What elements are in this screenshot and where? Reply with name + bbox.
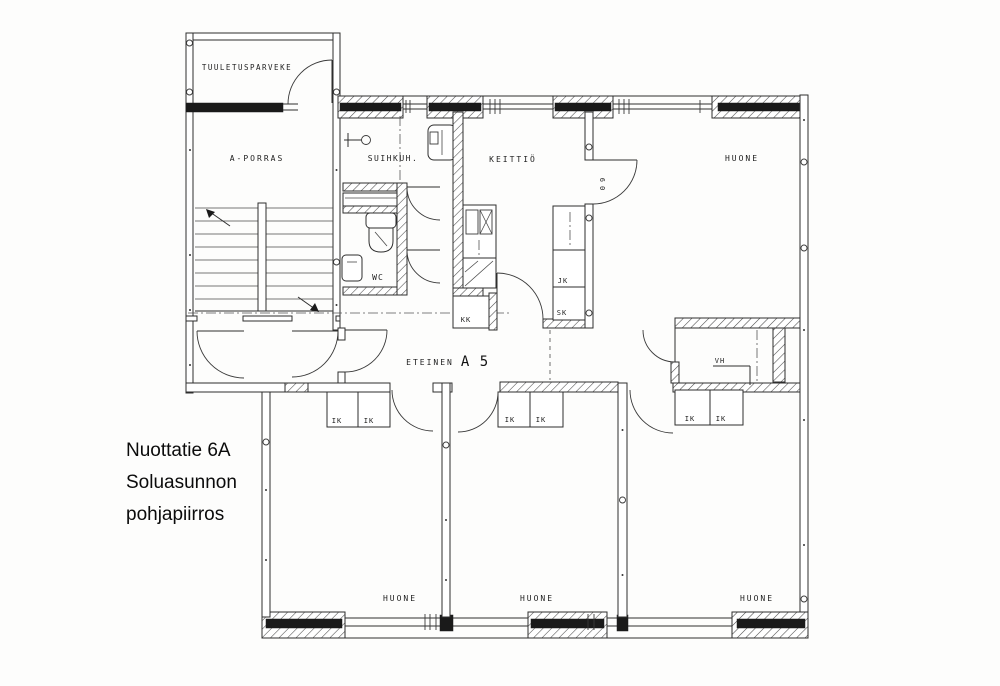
door-width-mark: 60 [598, 178, 606, 194]
wc-handbasin-icon [342, 255, 362, 281]
lower-west-wall [262, 390, 270, 617]
wardrobe-label: IK [364, 417, 374, 425]
hallway-entry-door [345, 330, 387, 372]
landing-door-right [292, 331, 338, 377]
floorplan-drawing: TUULETUSPARVEKE A-PORRAS SUIHKUH. KEITTI… [0, 0, 1000, 686]
west-wall [186, 33, 193, 393]
shower-label: SUIHKUH. [368, 154, 419, 163]
caption-line2: Soluasunnon [126, 472, 237, 493]
room2-label: HUONE [520, 594, 554, 603]
balcony-door [288, 60, 332, 104]
shower-head-icon [344, 133, 371, 147]
room-labels: TUULETUSPARVEKE A-PORRAS SUIHKUH. KEITTI… [202, 63, 774, 603]
east-wall [800, 95, 808, 638]
fridge-cupboard-column [553, 206, 586, 320]
closet-door [643, 328, 675, 362]
kitchenette-nook [453, 293, 497, 330]
stair-handrail [258, 203, 266, 311]
closet-north-wall [675, 318, 800, 328]
room1-label: HUONE [383, 594, 417, 603]
cleaning-cupboard-label: SK [557, 309, 567, 317]
room-top-label: HUONE [725, 154, 759, 163]
room2-door [458, 392, 498, 432]
room3-door [630, 390, 673, 433]
caption-line3: pohjapiirros [126, 504, 224, 525]
kitchenette-label: KK [461, 316, 471, 324]
toilet-icon [366, 213, 396, 252]
closet-label: VH [715, 357, 725, 365]
stairwell-east-wall [333, 33, 340, 330]
wc-vanity [343, 193, 403, 206]
hallway-label: ETEINEN [406, 358, 454, 367]
wet-room-block [342, 116, 456, 295]
staircase-label: A-PORRAS [230, 154, 285, 163]
kitchen-counter-sink [463, 205, 496, 288]
wardrobe-label: IK [536, 416, 546, 424]
washbasin-icon [428, 125, 456, 160]
exterior-walls [186, 33, 808, 638]
balcony-top-wall [186, 33, 338, 40]
kitchen-label: KEITTIÖ [489, 154, 537, 164]
closet [643, 318, 800, 385]
wardrobe-label: IK [685, 415, 695, 423]
caption-block: Nuottatie 6A Soluasunnon pohjapiirros [126, 440, 237, 525]
kitchen-room-wall [585, 112, 593, 160]
balcony-label: TUULETUSPARVEKE [202, 63, 292, 72]
partition-wall-1 [442, 383, 450, 617]
floorplan-scan: TUULETUSPARVEKE A-PORRAS SUIHKUH. KEITTI… [0, 0, 1000, 686]
apartment-id-label: A 5 [461, 354, 489, 370]
balcony-wall-dark [186, 103, 283, 112]
caption-line1: Nuottatie 6A [126, 440, 231, 461]
room1-door [392, 390, 433, 431]
kitchen-room-wall [585, 204, 593, 328]
wardrobe-label: IK [716, 415, 726, 423]
room3-label: HUONE [740, 594, 774, 603]
shower-door [407, 187, 440, 220]
wardrobe-label: IK [505, 416, 515, 424]
wc-label: WC [372, 273, 384, 282]
fridge-label: JK [558, 277, 568, 285]
wardrobe-label: IK [332, 417, 342, 425]
bottom-wall [262, 612, 808, 638]
kitchen-west-wall [453, 112, 463, 290]
wc-door [407, 250, 440, 283]
kitchen-door [497, 273, 543, 319]
landing-door-left [197, 331, 244, 378]
kitchen-fixtures [453, 112, 637, 330]
